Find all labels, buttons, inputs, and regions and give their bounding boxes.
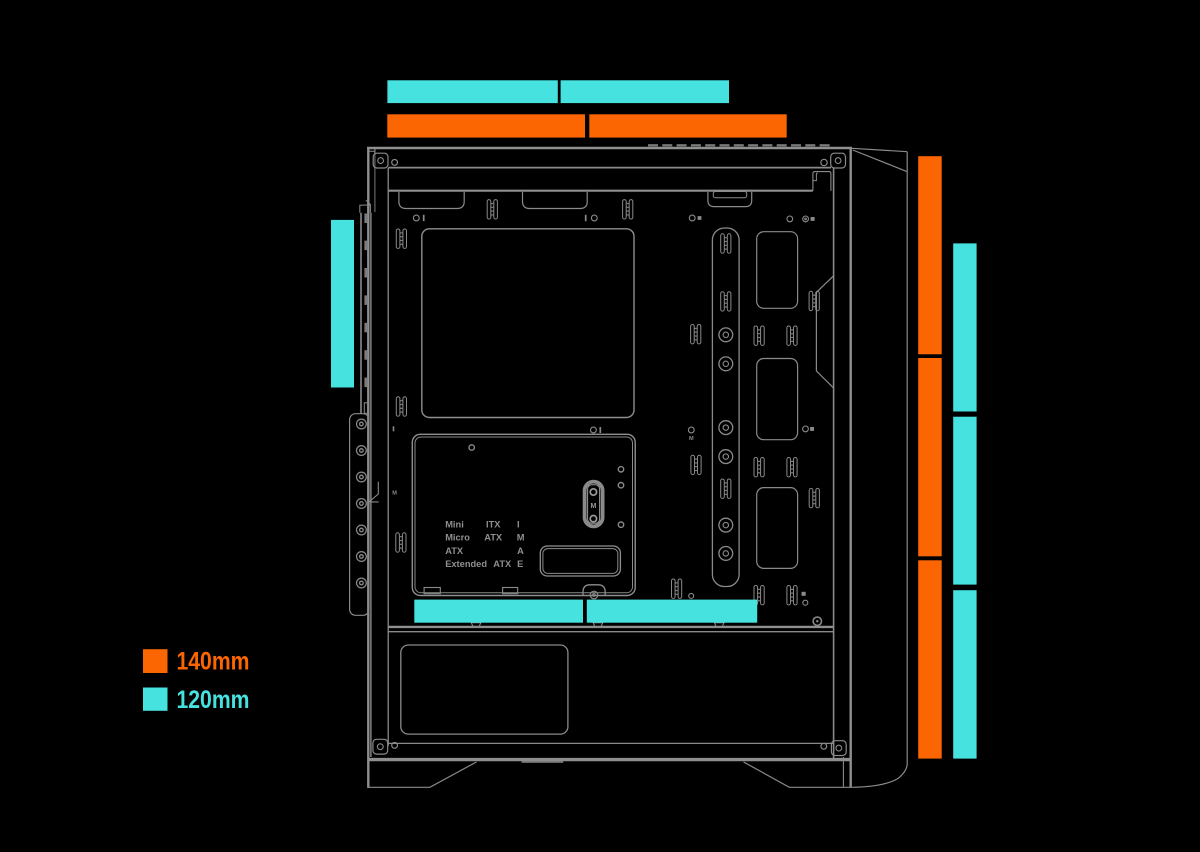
svg-text:Micro: Micro xyxy=(445,533,470,543)
svg-text:Extended: Extended xyxy=(445,559,487,569)
svg-text:Mini: Mini xyxy=(445,520,464,530)
svg-text:M: M xyxy=(517,533,525,543)
svg-text:ITX: ITX xyxy=(486,520,501,530)
svg-text:140mm: 140mm xyxy=(177,647,250,675)
svg-text:E: E xyxy=(517,559,523,569)
svg-text:M: M xyxy=(689,436,694,442)
svg-text:ATX: ATX xyxy=(493,559,512,569)
svg-text:A: A xyxy=(517,546,524,556)
svg-text:ATX: ATX xyxy=(484,533,503,543)
svg-text:120mm: 120mm xyxy=(177,686,250,714)
svg-text:I: I xyxy=(517,520,520,530)
svg-text:ATX: ATX xyxy=(445,546,464,556)
svg-text:M: M xyxy=(590,503,596,510)
svg-text:M: M xyxy=(392,491,397,497)
